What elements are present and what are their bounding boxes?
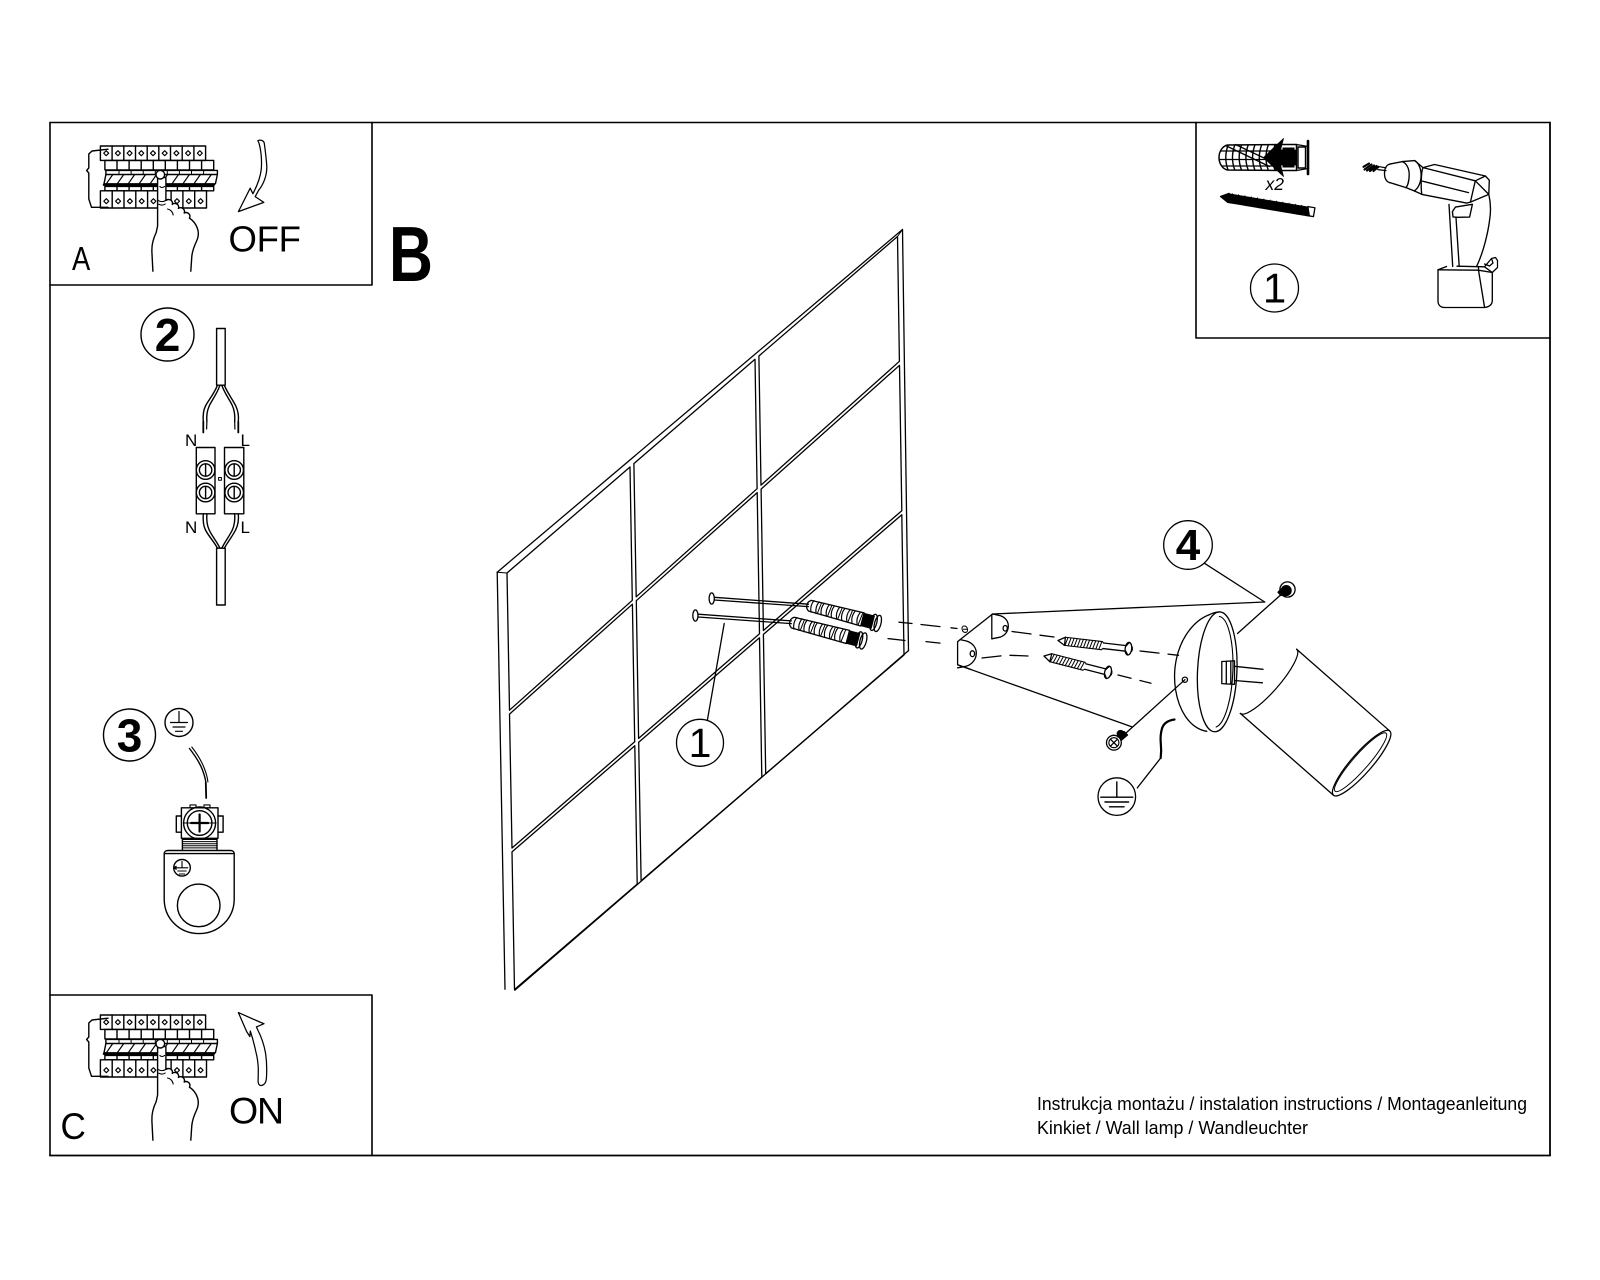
svg-text:x2: x2 [1265,174,1285,194]
svg-text:A: A [72,242,91,278]
svg-text:B: B [389,211,433,298]
svg-text:C: C [61,1105,86,1147]
svg-text:3: 3 [117,710,143,762]
svg-text:4: 4 [1176,521,1201,570]
svg-text:ON: ON [229,1090,283,1132]
svg-text:1: 1 [1263,265,1286,312]
svg-text:1: 1 [689,720,712,766]
svg-text:Instrukcja montażu / instalati: Instrukcja montażu / instalation instruc… [1037,1093,1527,1114]
svg-text:2: 2 [155,309,181,361]
svg-text:Kinkiet / Wall lamp / Wandleuc: Kinkiet / Wall lamp / Wandleuchter [1037,1117,1308,1138]
svg-text:L: L [241,518,250,537]
svg-text:N: N [185,431,197,450]
svg-text:N: N [185,518,197,537]
svg-text:OFF: OFF [229,219,301,260]
